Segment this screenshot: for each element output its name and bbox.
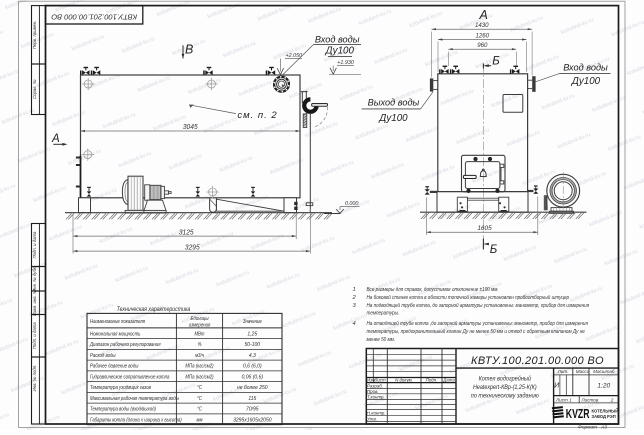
svg-text:Гидравлическое сопротивление к: Гидравлическое сопротивление котла — [90, 374, 170, 381]
svg-text:м3/ч: м3/ч — [195, 352, 204, 359]
svg-text:Номинальная мощность: Номинальная мощность — [90, 331, 141, 338]
svg-text:Подп. и дата: Подп. и дата — [32, 322, 37, 350]
svg-text:менее 50 мм.: менее 50 мм. — [367, 336, 396, 343]
svg-text:Значение: Значение — [243, 319, 262, 326]
svg-text:1:20: 1:20 — [597, 383, 610, 390]
svg-text:не более 250: не более 250 — [237, 385, 268, 391]
svg-text:Ду100: Ду100 — [378, 113, 408, 124]
svg-text:МПа (кгс/см2): МПа (кгс/см2) — [185, 363, 213, 370]
svg-text:1605: 1605 — [477, 225, 492, 232]
svg-text:0,06 (0,6): 0,06 (0,6) — [242, 374, 264, 380]
svg-text:На отводящей трубе котла ,до з: На отводящей трубе котла ,до запорной ар… — [367, 319, 589, 327]
svg-text:Heatexpert-КВр-(1,25-К(К): Heatexpert-КВр-(1,25-К(К) — [473, 385, 537, 391]
svg-text:Разраб.: Разраб. — [367, 383, 383, 388]
svg-text:°С: °С — [197, 385, 202, 392]
svg-text:0,6 (6,0): 0,6 (6,0) — [243, 363, 262, 369]
svg-text:3295: 3295 — [185, 244, 200, 251]
svg-text:В: В — [185, 42, 193, 56]
svg-text:1,25: 1,25 — [247, 331, 257, 337]
svg-text:КВТУ.100.201.00.000 ВО: КВТУ.100.201.00.000 ВО — [471, 355, 604, 367]
svg-text:Техническая характеристика: Техническая характеристика — [117, 307, 191, 313]
svg-text:50-100: 50-100 — [244, 342, 260, 348]
svg-text:Б: Б — [490, 244, 498, 256]
svg-text:На подводящей трубе котла, до: На подводящей трубе котла, до запорной а… — [367, 301, 590, 309]
svg-text:Подп. и дата: Подп. и дата — [32, 231, 37, 259]
svg-text:Температура воды (вход/выход): Температура воды (вход/выход) — [90, 406, 156, 413]
svg-text:На боковой стенке котла в обла: На боковой стенке котла в области топочн… — [367, 293, 570, 301]
svg-text:1430: 1430 — [475, 22, 489, 29]
svg-text:%: % — [198, 342, 202, 349]
svg-text:960: 960 — [477, 42, 488, 49]
svg-text:Максимальная рабочая температу: Максимальная рабочая температура воды — [90, 395, 179, 402]
svg-text:3295х1605х2050: 3295х1605х2050 — [233, 417, 271, 423]
svg-text:Масса: Масса — [576, 369, 590, 374]
svg-text:1260: 1260 — [475, 32, 489, 39]
svg-text:Н.контр.: Н.контр. — [367, 411, 386, 416]
svg-text:Справ. №: Справ. № — [32, 79, 37, 99]
svg-text:Габариты котла (длина х ширина: Габариты котла (длина х ширина х высота) — [90, 417, 182, 424]
svg-text:ЗАВОД РЭП: ЗАВОД РЭП — [592, 414, 616, 419]
svg-text:КВТУ.100.201.00.000 ВО: КВТУ.100.201.00.000 ВО — [51, 13, 137, 22]
svg-text:Лист: Лист — [555, 397, 568, 402]
svg-text:3125: 3125 — [179, 229, 194, 236]
svg-text:4,3: 4,3 — [249, 353, 256, 359]
svg-text:измерения: измерения — [189, 322, 211, 329]
svg-text:Котел водогрейный: Котел водогрейный — [479, 375, 532, 382]
svg-text:Пров.: Пров. — [367, 389, 379, 394]
svg-text:МВт: МВт — [194, 331, 204, 338]
svg-text:1: 1 — [353, 287, 356, 293]
svg-text:1: 1 — [569, 397, 572, 402]
svg-text:Утв.: Утв. — [367, 417, 377, 422]
svg-text:А: А — [479, 8, 488, 22]
svg-text:Взам. инв. №: Взам. инв. № — [32, 289, 37, 316]
svg-text:Температура уходящих газов: Температура уходящих газов — [90, 385, 151, 392]
svg-text:Вход воды: Вход воды — [563, 63, 608, 73]
svg-text:°С: °С — [197, 406, 202, 413]
svg-text:Формат: Формат — [578, 424, 597, 430]
svg-text:А: А — [51, 133, 60, 145]
svg-text:температуры, предохранительный: температуры, предохранительный клапан Ду… — [367, 327, 585, 335]
svg-text:КОТЕЛЬНЫЙ: КОТЕЛЬНЫЙ — [592, 408, 619, 413]
svg-text:Перв. примен.: Перв. примен. — [32, 21, 37, 50]
svg-text:Дата: Дата — [442, 377, 455, 382]
svg-text:Ду100: Ду100 — [325, 46, 355, 57]
svg-text:Наименование показателя: Наименование показателя — [90, 319, 145, 326]
svg-text:Листов: Листов — [581, 397, 599, 402]
svg-text:Т.контр.: Т.контр. — [367, 394, 385, 399]
svg-text:Диапазон рабочего регулировани: Диапазон рабочего регулирования — [89, 342, 161, 349]
svg-text:см. п. 2: см. п. 2 — [237, 110, 277, 121]
svg-text:Ду100: Ду100 — [571, 76, 601, 87]
svg-text:Рабочее давление воды: Рабочее давление воды — [90, 363, 139, 370]
svg-text:Инв. № подл.: Инв. № подл. — [32, 365, 37, 392]
svg-text:Б: Б — [492, 56, 500, 68]
svg-text:по техническому заданию: по техническому заданию — [471, 393, 540, 399]
svg-text:KVZR: KVZR — [566, 408, 590, 422]
svg-text:Все размеры для справок, допус: Все размеры для справок, допустимое откл… — [367, 287, 499, 294]
svg-text:МПа (кгс/см2): МПа (кгс/см2) — [185, 374, 213, 381]
svg-text:Масштаб: Масштаб — [593, 369, 615, 374]
svg-text:Выход воды: Выход воды — [368, 98, 420, 108]
svg-text:температуры.: температуры. — [367, 310, 400, 317]
svg-text:3045: 3045 — [183, 124, 198, 131]
svg-text:Инв. № дубл.: Инв. № дубл. — [32, 266, 37, 292]
svg-text:Вход воды: Вход воды — [315, 35, 360, 45]
svg-text:Подп.: Подп. — [426, 377, 438, 382]
svg-text:N докум.: N докум. — [395, 377, 413, 382]
svg-text:мм: мм — [197, 417, 203, 424]
svg-text:70/95: 70/95 — [246, 406, 259, 412]
svg-text:°С: °С — [197, 395, 202, 402]
svg-text:Расход воды: Расход воды — [90, 352, 116, 359]
svg-text:115: 115 — [248, 396, 256, 402]
svg-text:4: 4 — [353, 321, 356, 327]
svg-text:Лист: Лист — [373, 377, 386, 382]
svg-text:Лит.: Лит. — [557, 369, 569, 374]
svg-text:2: 2 — [610, 397, 614, 402]
svg-text:А3: А3 — [600, 424, 607, 430]
